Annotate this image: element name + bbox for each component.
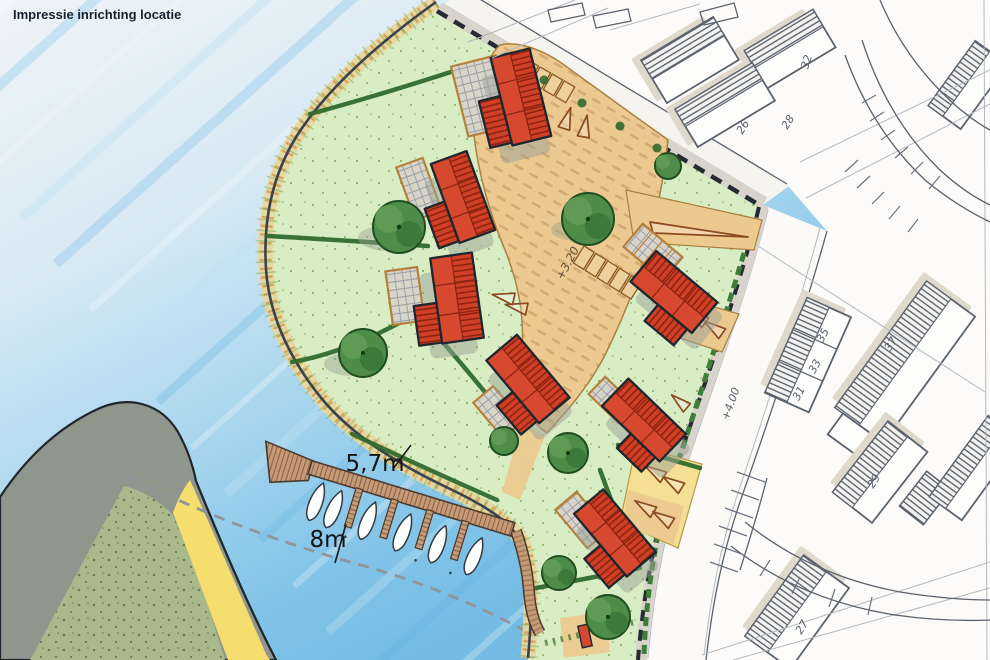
dimension-label-fairway: 8m [309,527,346,553]
site-plan-drawing: 5,7m 8m +3.20 +4.00 32 26 28 35 33 31 37… [0,0,990,660]
page-title: Impressie inrichting locatie [13,7,181,22]
site-plan: 5,7m 8m +3.20 +4.00 32 26 28 35 33 31 37… [0,0,990,660]
dimension-label-berth: 5,7m [346,451,405,477]
tree [562,193,614,245]
tree [339,329,387,377]
tree [655,153,681,179]
tree [490,427,518,455]
tree [542,556,576,590]
tree [548,433,588,473]
tree [373,201,425,253]
tree [586,595,630,639]
